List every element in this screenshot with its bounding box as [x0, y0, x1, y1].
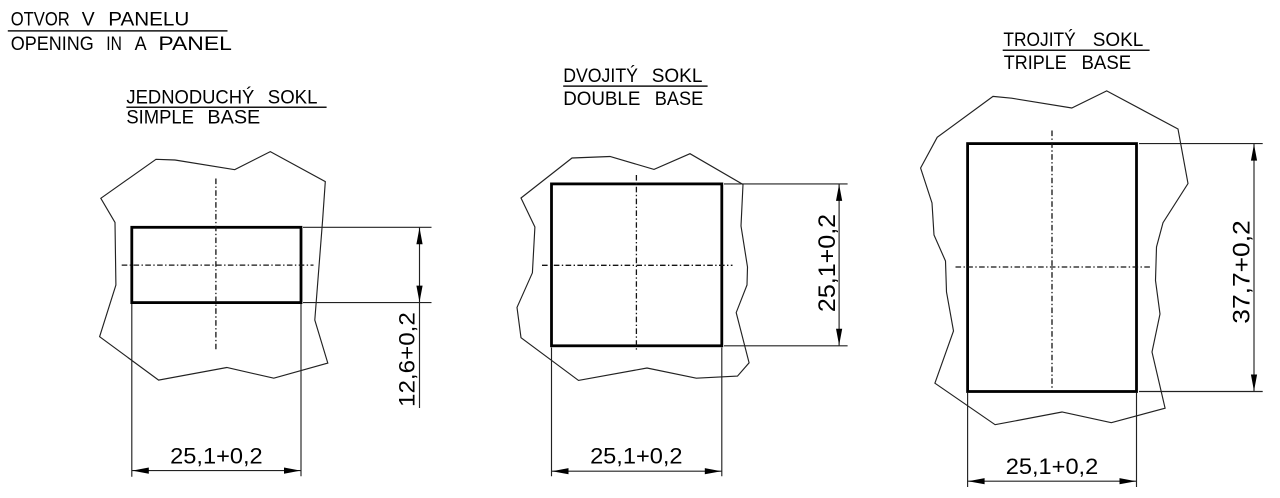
svg-text:OPENING: OPENING — [11, 32, 94, 54]
svg-text:BASE: BASE — [207, 107, 260, 129]
svg-text:SOKL: SOKL — [652, 66, 703, 87]
svg-text:25,1+0,2: 25,1+0,2 — [1006, 454, 1098, 479]
svg-text:SOKL: SOKL — [1093, 30, 1144, 51]
svg-text:PANEL: PANEL — [158, 34, 231, 55]
svg-text:DVOJITÝ: DVOJITÝ — [563, 64, 638, 86]
svg-text:TRIPLE: TRIPLE — [1004, 52, 1067, 74]
svg-text:25,1+0,2: 25,1+0,2 — [815, 214, 841, 312]
svg-text:IN: IN — [106, 32, 122, 54]
svg-text:V: V — [82, 10, 95, 31]
svg-text:SIMPLE: SIMPLE — [126, 106, 194, 127]
svg-text:BASE: BASE — [655, 88, 703, 109]
svg-text:DOUBLE: DOUBLE — [563, 89, 640, 110]
svg-text:BASE: BASE — [1082, 52, 1132, 73]
svg-text:TROJITÝ: TROJITÝ — [1003, 29, 1075, 50]
svg-text:PANELU: PANELU — [108, 9, 189, 30]
svg-text:A: A — [135, 32, 148, 54]
svg-text:JEDNODUCHÝ: JEDNODUCHÝ — [126, 86, 254, 107]
svg-text:12,6+0,2: 12,6+0,2 — [395, 312, 420, 407]
svg-text:SOKL: SOKL — [268, 86, 318, 107]
svg-text:37,7+0,2: 37,7+0,2 — [1228, 220, 1255, 323]
svg-text:25,1+0,2: 25,1+0,2 — [590, 443, 682, 468]
svg-text:25,1+0,2: 25,1+0,2 — [170, 443, 262, 468]
svg-text:OTVOR: OTVOR — [11, 8, 70, 29]
